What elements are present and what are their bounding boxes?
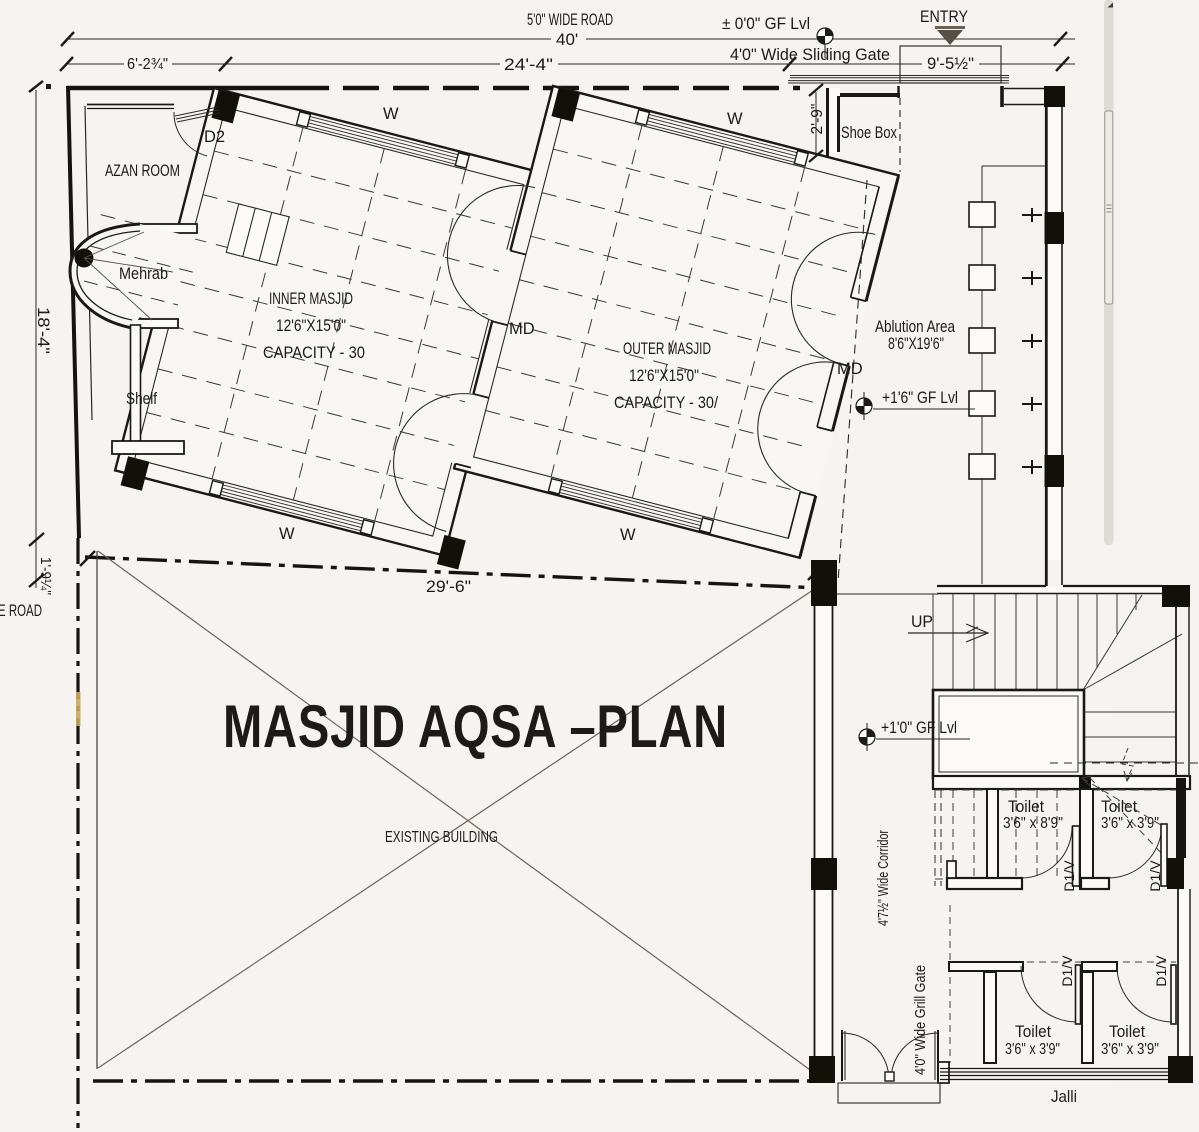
svg-text:± 0'0" GF Lvl: ± 0'0" GF Lvl: [722, 15, 810, 33]
svg-text:12'6"X15'0": 12'6"X15'0": [276, 317, 346, 335]
svg-text:Mehrab: Mehrab: [119, 265, 168, 283]
svg-text:CAPACITY - 30: CAPACITY - 30: [263, 344, 365, 362]
svg-text:OUTER MASJID: OUTER MASJID: [623, 340, 711, 358]
svg-text:UP: UP: [911, 612, 933, 631]
svg-text:INNER MASJID: INNER MASJID: [269, 290, 353, 308]
svg-text:E ROAD: E ROAD: [0, 602, 42, 620]
svg-text:W: W: [727, 110, 743, 128]
svg-text:D1/V: D1/V: [1147, 860, 1163, 892]
svg-text:+1'0" GF Lvl: +1'0" GF Lvl: [881, 719, 957, 737]
svg-text:3'6" x 8'9": 3'6" x 8'9": [1003, 815, 1063, 832]
svg-text:40': 40': [556, 30, 578, 49]
svg-text:6'-2¾": 6'-2¾": [127, 56, 168, 73]
svg-text:4'0" Wide Sliding Gate: 4'0" Wide Sliding Gate: [730, 46, 890, 64]
svg-text:Shelf: Shelf: [126, 390, 157, 408]
svg-text:8'6"X19'6": 8'6"X19'6": [888, 335, 944, 353]
svg-text:AZAN ROOM: AZAN ROOM: [105, 161, 180, 180]
svg-text:D1/V: D1/V: [1153, 955, 1169, 987]
svg-text:18'-4": 18'-4": [34, 307, 52, 354]
svg-text:Toilet: Toilet: [1008, 798, 1044, 816]
svg-text:3'6" x 3'9": 3'6" x 3'9": [1005, 1041, 1060, 1058]
svg-text:Jalli: Jalli: [1051, 1088, 1077, 1106]
svg-text:D1/V: D1/V: [1059, 955, 1075, 987]
svg-text:Ablution Area: Ablution Area: [875, 318, 956, 336]
svg-text:Toilet: Toilet: [1101, 798, 1137, 816]
svg-text:1'-9¼": 1'-9¼": [37, 557, 54, 595]
svg-text:Toilet: Toilet: [1015, 1023, 1051, 1041]
svg-text:CAPACITY - 30/: CAPACITY - 30/: [614, 394, 718, 412]
svg-text:5'0" WIDE ROAD: 5'0" WIDE ROAD: [527, 11, 613, 29]
svg-text:D1/V: D1/V: [1061, 860, 1077, 892]
svg-text:29'-6": 29'-6": [426, 578, 471, 596]
svg-text:D2: D2: [204, 128, 225, 146]
svg-text:W: W: [383, 105, 399, 123]
svg-text:9'-5½": 9'-5½": [927, 55, 974, 73]
svg-text:+1'6" GF Lvl: +1'6" GF Lvl: [882, 389, 958, 407]
svg-text:4'0" Wide Grill Gate: 4'0" Wide Grill Gate: [912, 965, 929, 1075]
svg-text:ENTRY: ENTRY: [920, 7, 968, 26]
svg-text:MASJID AQSA –PLAN: MASJID AQSA –PLAN: [223, 693, 728, 760]
svg-text:MD: MD: [837, 360, 863, 378]
svg-text:W: W: [620, 526, 636, 544]
svg-text:2'-9": 2'-9": [809, 104, 826, 135]
svg-text:Shoe Box: Shoe Box: [841, 124, 898, 142]
svg-text:3'6" x 3'9": 3'6" x 3'9": [1101, 1041, 1159, 1058]
svg-text:12'6"X15'0": 12'6"X15'0": [629, 367, 699, 385]
svg-text:MD: MD: [509, 320, 535, 338]
svg-text:3'6" x 3'9": 3'6" x 3'9": [1101, 815, 1159, 832]
svg-text:Toilet: Toilet: [1109, 1023, 1145, 1041]
svg-text:W: W: [279, 525, 295, 543]
svg-text:24'-4": 24'-4": [504, 56, 553, 74]
svg-text:EXISTING BUILDING: EXISTING BUILDING: [385, 829, 498, 846]
svg-text:4'7½" Wide Corridor: 4'7½" Wide Corridor: [875, 830, 892, 926]
